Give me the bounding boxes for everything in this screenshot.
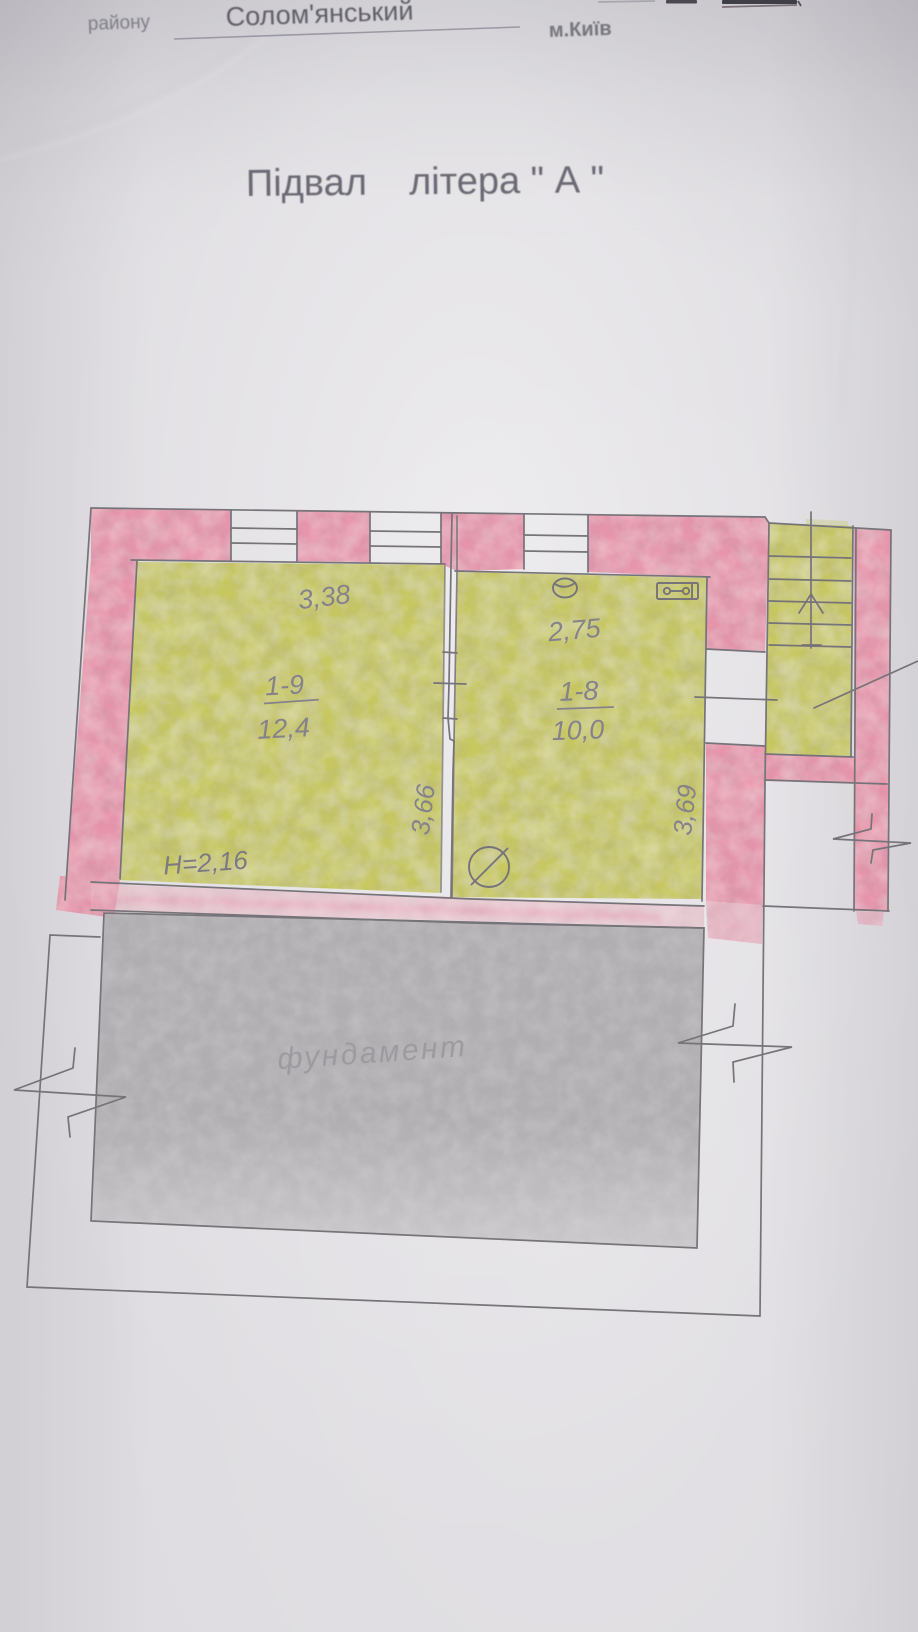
- svg-text:1-8: 1-8: [559, 676, 599, 707]
- svg-text:10,0: 10,0: [551, 714, 605, 746]
- svg-text:3,38: 3,38: [296, 579, 352, 615]
- svg-text:району: району: [87, 12, 151, 35]
- svg-text:3,66: 3,66: [405, 782, 441, 836]
- svg-text:H=2,16: H=2,16: [162, 845, 249, 881]
- svg-text:12,4: 12,4: [257, 712, 311, 745]
- svg-text:1-9: 1-9: [264, 669, 305, 701]
- svg-text:3,69: 3,69: [667, 783, 702, 836]
- svg-text:Підвал літера " А ": Підвал літера " А ": [246, 159, 605, 205]
- svg-text:2,75: 2,75: [546, 613, 603, 648]
- svg-text:м.Київ: м.Київ: [548, 18, 612, 42]
